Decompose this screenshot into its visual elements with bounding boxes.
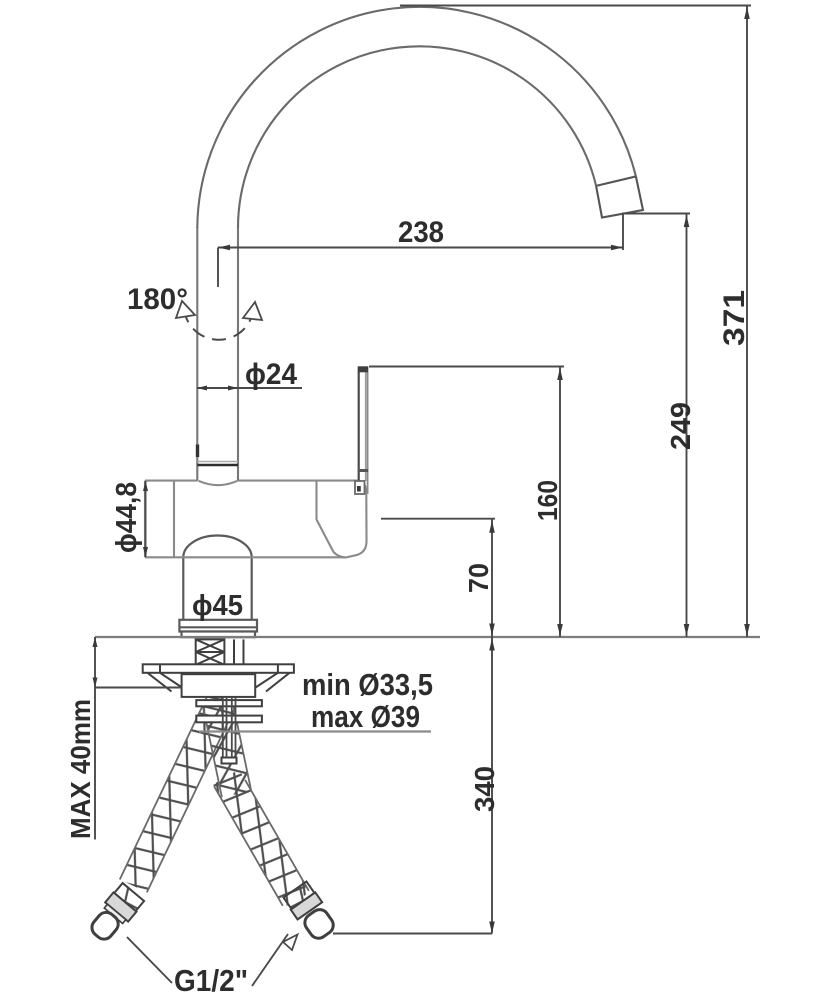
svg-text:238: 238 xyxy=(398,216,444,249)
svg-text:180°: 180° xyxy=(127,283,188,316)
svg-text:min Ø33,5: min Ø33,5 xyxy=(302,667,433,702)
svg-text:160: 160 xyxy=(532,480,563,521)
svg-text:371: 371 xyxy=(718,290,751,346)
svg-text:max Ø39: max Ø39 xyxy=(311,699,420,734)
svg-text:ϕ24: ϕ24 xyxy=(245,358,297,391)
svg-text:MAX 40mm: MAX 40mm xyxy=(65,699,96,839)
svg-text:ϕ45: ϕ45 xyxy=(192,590,243,622)
svg-text:249: 249 xyxy=(665,402,696,450)
svg-text:ϕ44,8: ϕ44,8 xyxy=(111,482,143,553)
svg-text:70: 70 xyxy=(463,563,494,593)
svg-text:340: 340 xyxy=(469,766,500,812)
svg-text:G1/2": G1/2" xyxy=(174,963,248,998)
